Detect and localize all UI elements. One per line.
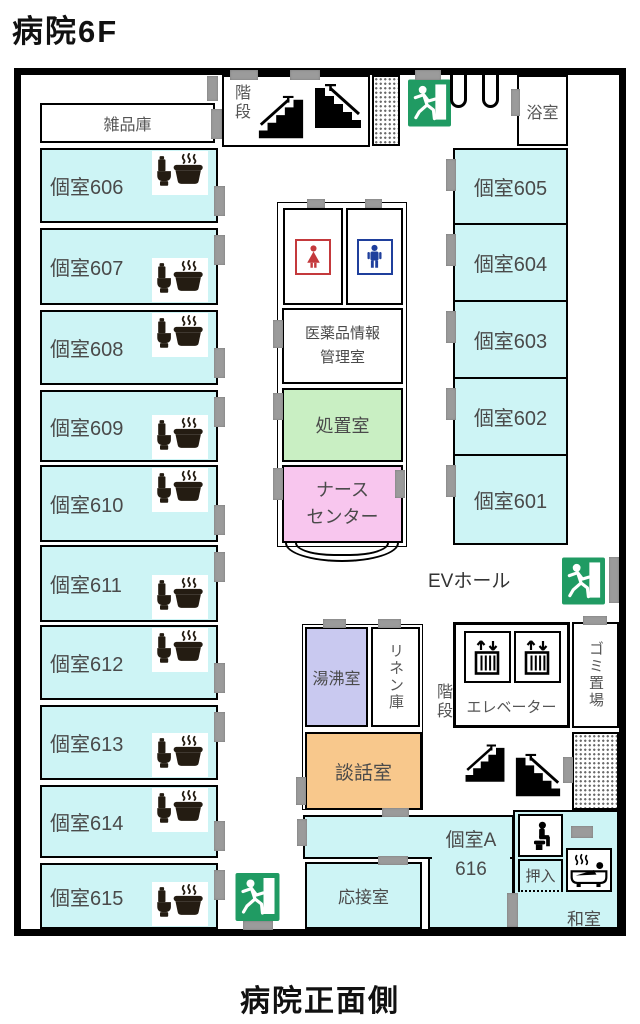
shower-stall-partition xyxy=(482,75,499,108)
stairs-up-icon xyxy=(256,95,306,141)
room-label: 個室610 xyxy=(50,489,123,518)
door-marker xyxy=(446,311,456,343)
door-marker xyxy=(446,465,456,497)
room-602: 個室602 xyxy=(453,377,568,456)
stairs-label: 階段 xyxy=(228,84,252,122)
room-label: 応接室 xyxy=(338,883,389,908)
room-label: 616 xyxy=(455,855,487,884)
page-title: 病院6F xyxy=(12,6,118,51)
door-marker xyxy=(214,821,225,851)
room-609: 個室609 xyxy=(40,390,218,462)
room-607: 個室607 xyxy=(40,228,218,305)
room-label: 個室605 xyxy=(474,172,547,201)
wc-male-room xyxy=(346,208,403,305)
room-treatment: 処置室 xyxy=(282,388,403,462)
room-611: 個室611 xyxy=(40,545,218,622)
door-marker xyxy=(365,199,382,208)
shower-stall-partition xyxy=(450,75,467,108)
toilet-bath-icon xyxy=(152,628,208,672)
door-marker xyxy=(382,808,409,817)
door-marker xyxy=(378,619,401,628)
floor-plan: 雑品庫 個室606 個室607 個室608 個室609 個室610 xyxy=(14,68,626,936)
door-marker xyxy=(273,468,283,500)
door-marker xyxy=(214,348,225,378)
room-label: 和室 xyxy=(567,905,601,930)
room-hot-water: 湯沸室 xyxy=(305,627,368,727)
room-label: 浴室 xyxy=(526,99,558,123)
door-marker xyxy=(273,320,283,348)
door-marker xyxy=(230,70,258,80)
door-marker xyxy=(511,89,520,116)
door-marker xyxy=(273,393,283,420)
room-label: 個室607 xyxy=(50,252,123,281)
room-label: 個室606 xyxy=(50,171,123,200)
door-marker xyxy=(214,235,225,265)
door-marker xyxy=(395,470,405,498)
room-608: 個室608 xyxy=(40,310,218,385)
door-marker xyxy=(214,870,225,900)
room-label: 雑品庫 xyxy=(103,111,151,135)
door-marker xyxy=(307,199,325,208)
door-marker xyxy=(290,70,320,80)
door-marker xyxy=(297,819,307,846)
toilet-bath-icon xyxy=(152,575,208,619)
door-marker xyxy=(571,826,593,838)
door-marker xyxy=(207,76,218,101)
elevator-room: エレベーター xyxy=(453,622,570,728)
emergency-exit-icon xyxy=(235,873,280,921)
room-reception: 応接室 xyxy=(305,862,422,929)
room-label: 個室601 xyxy=(474,485,547,514)
door-marker xyxy=(446,388,456,420)
room-label: 個室A xyxy=(446,826,497,855)
room-label: 個室614 xyxy=(50,807,123,836)
toilet-bath-icon xyxy=(152,882,208,926)
room-label: 個室603 xyxy=(474,325,547,354)
stairs-label: 階段 xyxy=(430,683,454,721)
bathtub-icon xyxy=(566,848,612,892)
room-606: 個室606 xyxy=(40,148,218,223)
elevator-label: エレベーター xyxy=(456,696,567,717)
door-marker xyxy=(323,619,346,628)
door-marker xyxy=(214,186,225,216)
toilet-bath-icon xyxy=(152,151,208,195)
room-label: 談話室 xyxy=(335,758,392,785)
room-601: 個室601 xyxy=(453,454,568,545)
room-label: 湯沸室 xyxy=(312,665,360,689)
room-label: 医薬品情報 xyxy=(305,322,380,346)
room-label: ナース xyxy=(316,477,369,504)
door-marker xyxy=(214,397,225,427)
door-marker xyxy=(609,557,619,603)
door-marker xyxy=(296,777,306,805)
elevator-icon xyxy=(514,631,561,683)
room-storage: 雑品庫 xyxy=(40,103,215,143)
room-label: 個室602 xyxy=(474,402,547,431)
room-603: 個室603 xyxy=(453,300,568,379)
room-label: センター xyxy=(307,504,379,531)
room-label: 個室612 xyxy=(50,648,123,677)
room-label: 個室608 xyxy=(50,333,123,362)
door-marker xyxy=(214,552,225,582)
door-marker xyxy=(507,893,518,927)
room-610: 個室610 xyxy=(40,465,218,542)
room-linen: リネン庫 xyxy=(371,627,420,727)
female-toilet-icon xyxy=(295,239,331,275)
room-label: 個室615 xyxy=(50,882,123,911)
ev-hall-label: EVホール xyxy=(428,566,510,593)
room-613: 個室613 xyxy=(40,705,218,780)
door-marker xyxy=(211,109,222,139)
door-marker xyxy=(214,505,225,535)
room-a616-label: 個室A 616 xyxy=(428,820,514,890)
stairs-down-icon xyxy=(513,753,563,799)
elevator-icon xyxy=(464,631,511,683)
stairs-down-icon xyxy=(312,83,364,131)
room-garbage: ゴミ置場 xyxy=(572,622,619,728)
door-marker xyxy=(583,616,607,625)
toilet-bath-icon xyxy=(152,258,208,302)
room-604: 個室604 xyxy=(453,223,568,302)
emergency-exit-icon xyxy=(408,79,451,127)
toilet-bath-icon xyxy=(152,468,208,512)
door-marker xyxy=(563,757,573,783)
male-toilet-icon xyxy=(357,239,393,275)
door-marker xyxy=(214,663,225,693)
room-label: 処置室 xyxy=(316,412,370,438)
toilet-icon xyxy=(518,814,563,857)
room-label: ゴミ置場 xyxy=(585,641,606,709)
room-614: 個室614 xyxy=(40,785,218,858)
room-615: 個室615 xyxy=(40,863,218,929)
room-612: 個室612 xyxy=(40,625,218,700)
shaft-hatched-area xyxy=(372,75,400,146)
toilet-bath-icon xyxy=(152,733,208,777)
door-marker xyxy=(446,234,456,266)
closet: 押入 xyxy=(518,859,563,892)
door-marker xyxy=(415,70,441,80)
room-lounge: 談話室 xyxy=(305,732,422,810)
room-label: 個室613 xyxy=(50,728,123,757)
room-label: 個室604 xyxy=(474,248,547,277)
room-nurse-center: ナース センター xyxy=(282,465,403,543)
room-605: 個室605 xyxy=(453,148,568,225)
door-marker xyxy=(214,712,225,742)
room-pharma-info: 医薬品情報 管理室 xyxy=(282,308,403,384)
toilet-bath-icon xyxy=(152,313,208,357)
stairs-up-icon xyxy=(463,743,507,785)
toilet-bath-icon xyxy=(152,788,208,832)
stairwell-top: 階段 xyxy=(222,75,370,147)
toilet-bath-icon xyxy=(152,415,208,459)
door-marker xyxy=(378,856,408,865)
room-label: 個室611 xyxy=(50,569,122,598)
shaft-hatched-area xyxy=(572,732,619,810)
room-label: 管理室 xyxy=(320,346,365,370)
emergency-exit-icon xyxy=(562,556,605,606)
room-label: リネン庫 xyxy=(385,643,406,711)
room-label: 個室609 xyxy=(50,412,123,441)
closet-label: 押入 xyxy=(525,865,555,886)
room-japanese: 押入 和室 xyxy=(513,810,619,929)
door-marker xyxy=(243,921,273,930)
front-side-caption: 病院正面側 xyxy=(0,976,640,1020)
door-marker xyxy=(446,159,456,191)
room-bathroom: 浴室 xyxy=(517,75,568,146)
wc-female-room xyxy=(283,208,343,305)
